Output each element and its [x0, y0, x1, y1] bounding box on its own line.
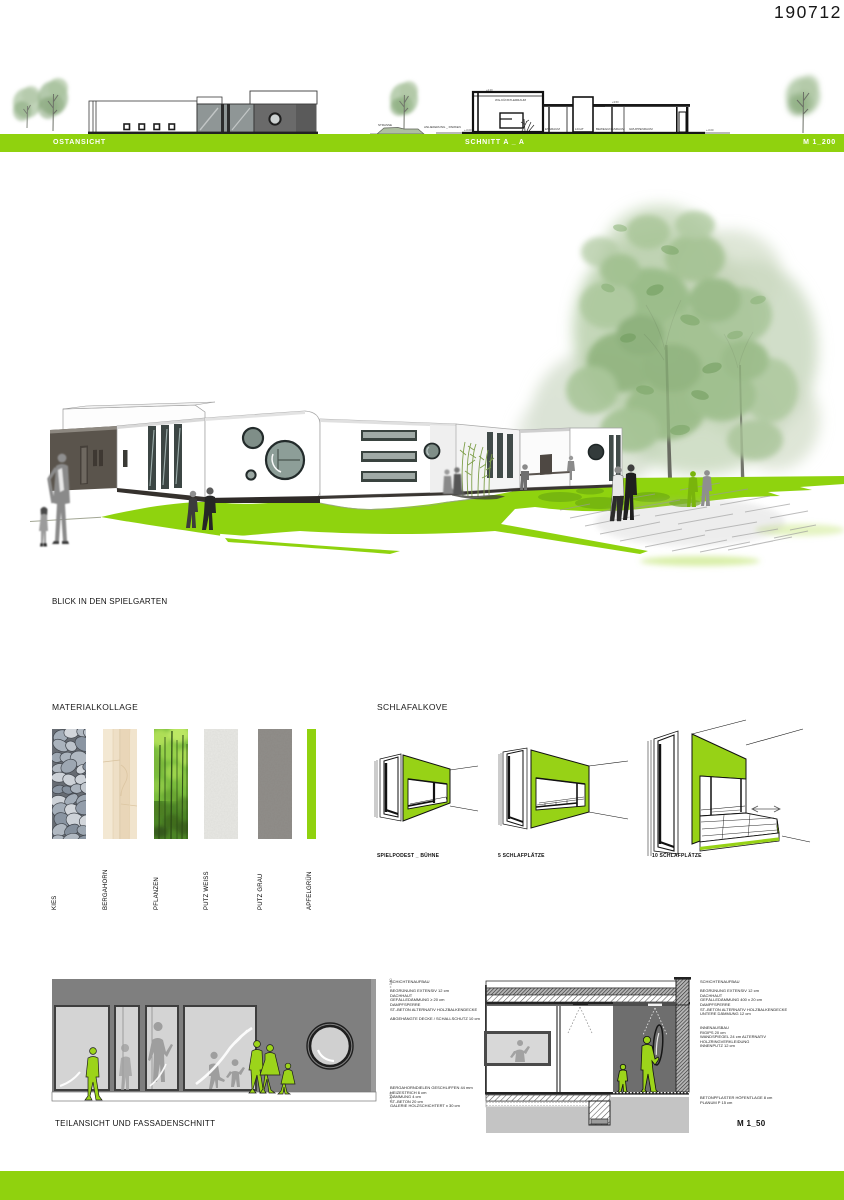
svg-text:WG-KÜNSTLERRAUM: WG-KÜNSTLERRAUM: [495, 98, 527, 102]
svg-text:+4.20: +4.20: [486, 88, 493, 92]
svg-text:BEWEGUNGSRAUM: BEWEGUNGSRAUM: [596, 127, 625, 131]
svg-text:+-0.00: +-0.00: [706, 128, 714, 132]
svg-text:STRASSE: STRASSE: [378, 123, 392, 127]
svg-text:+-0.00: +-0.00: [464, 128, 472, 132]
svg-text:ANLIEFERUNG _ PARKEN: ANLIEFERUNG _ PARKEN: [424, 125, 461, 129]
svg-text:LICHT: LICHT: [575, 127, 584, 131]
svg-text:GRUPPENRAUM: GRUPPENRAUM: [629, 127, 653, 131]
svg-text:+3.50: +3.50: [612, 100, 619, 104]
svg-text:ESSRAUM: ESSRAUM: [545, 127, 560, 131]
